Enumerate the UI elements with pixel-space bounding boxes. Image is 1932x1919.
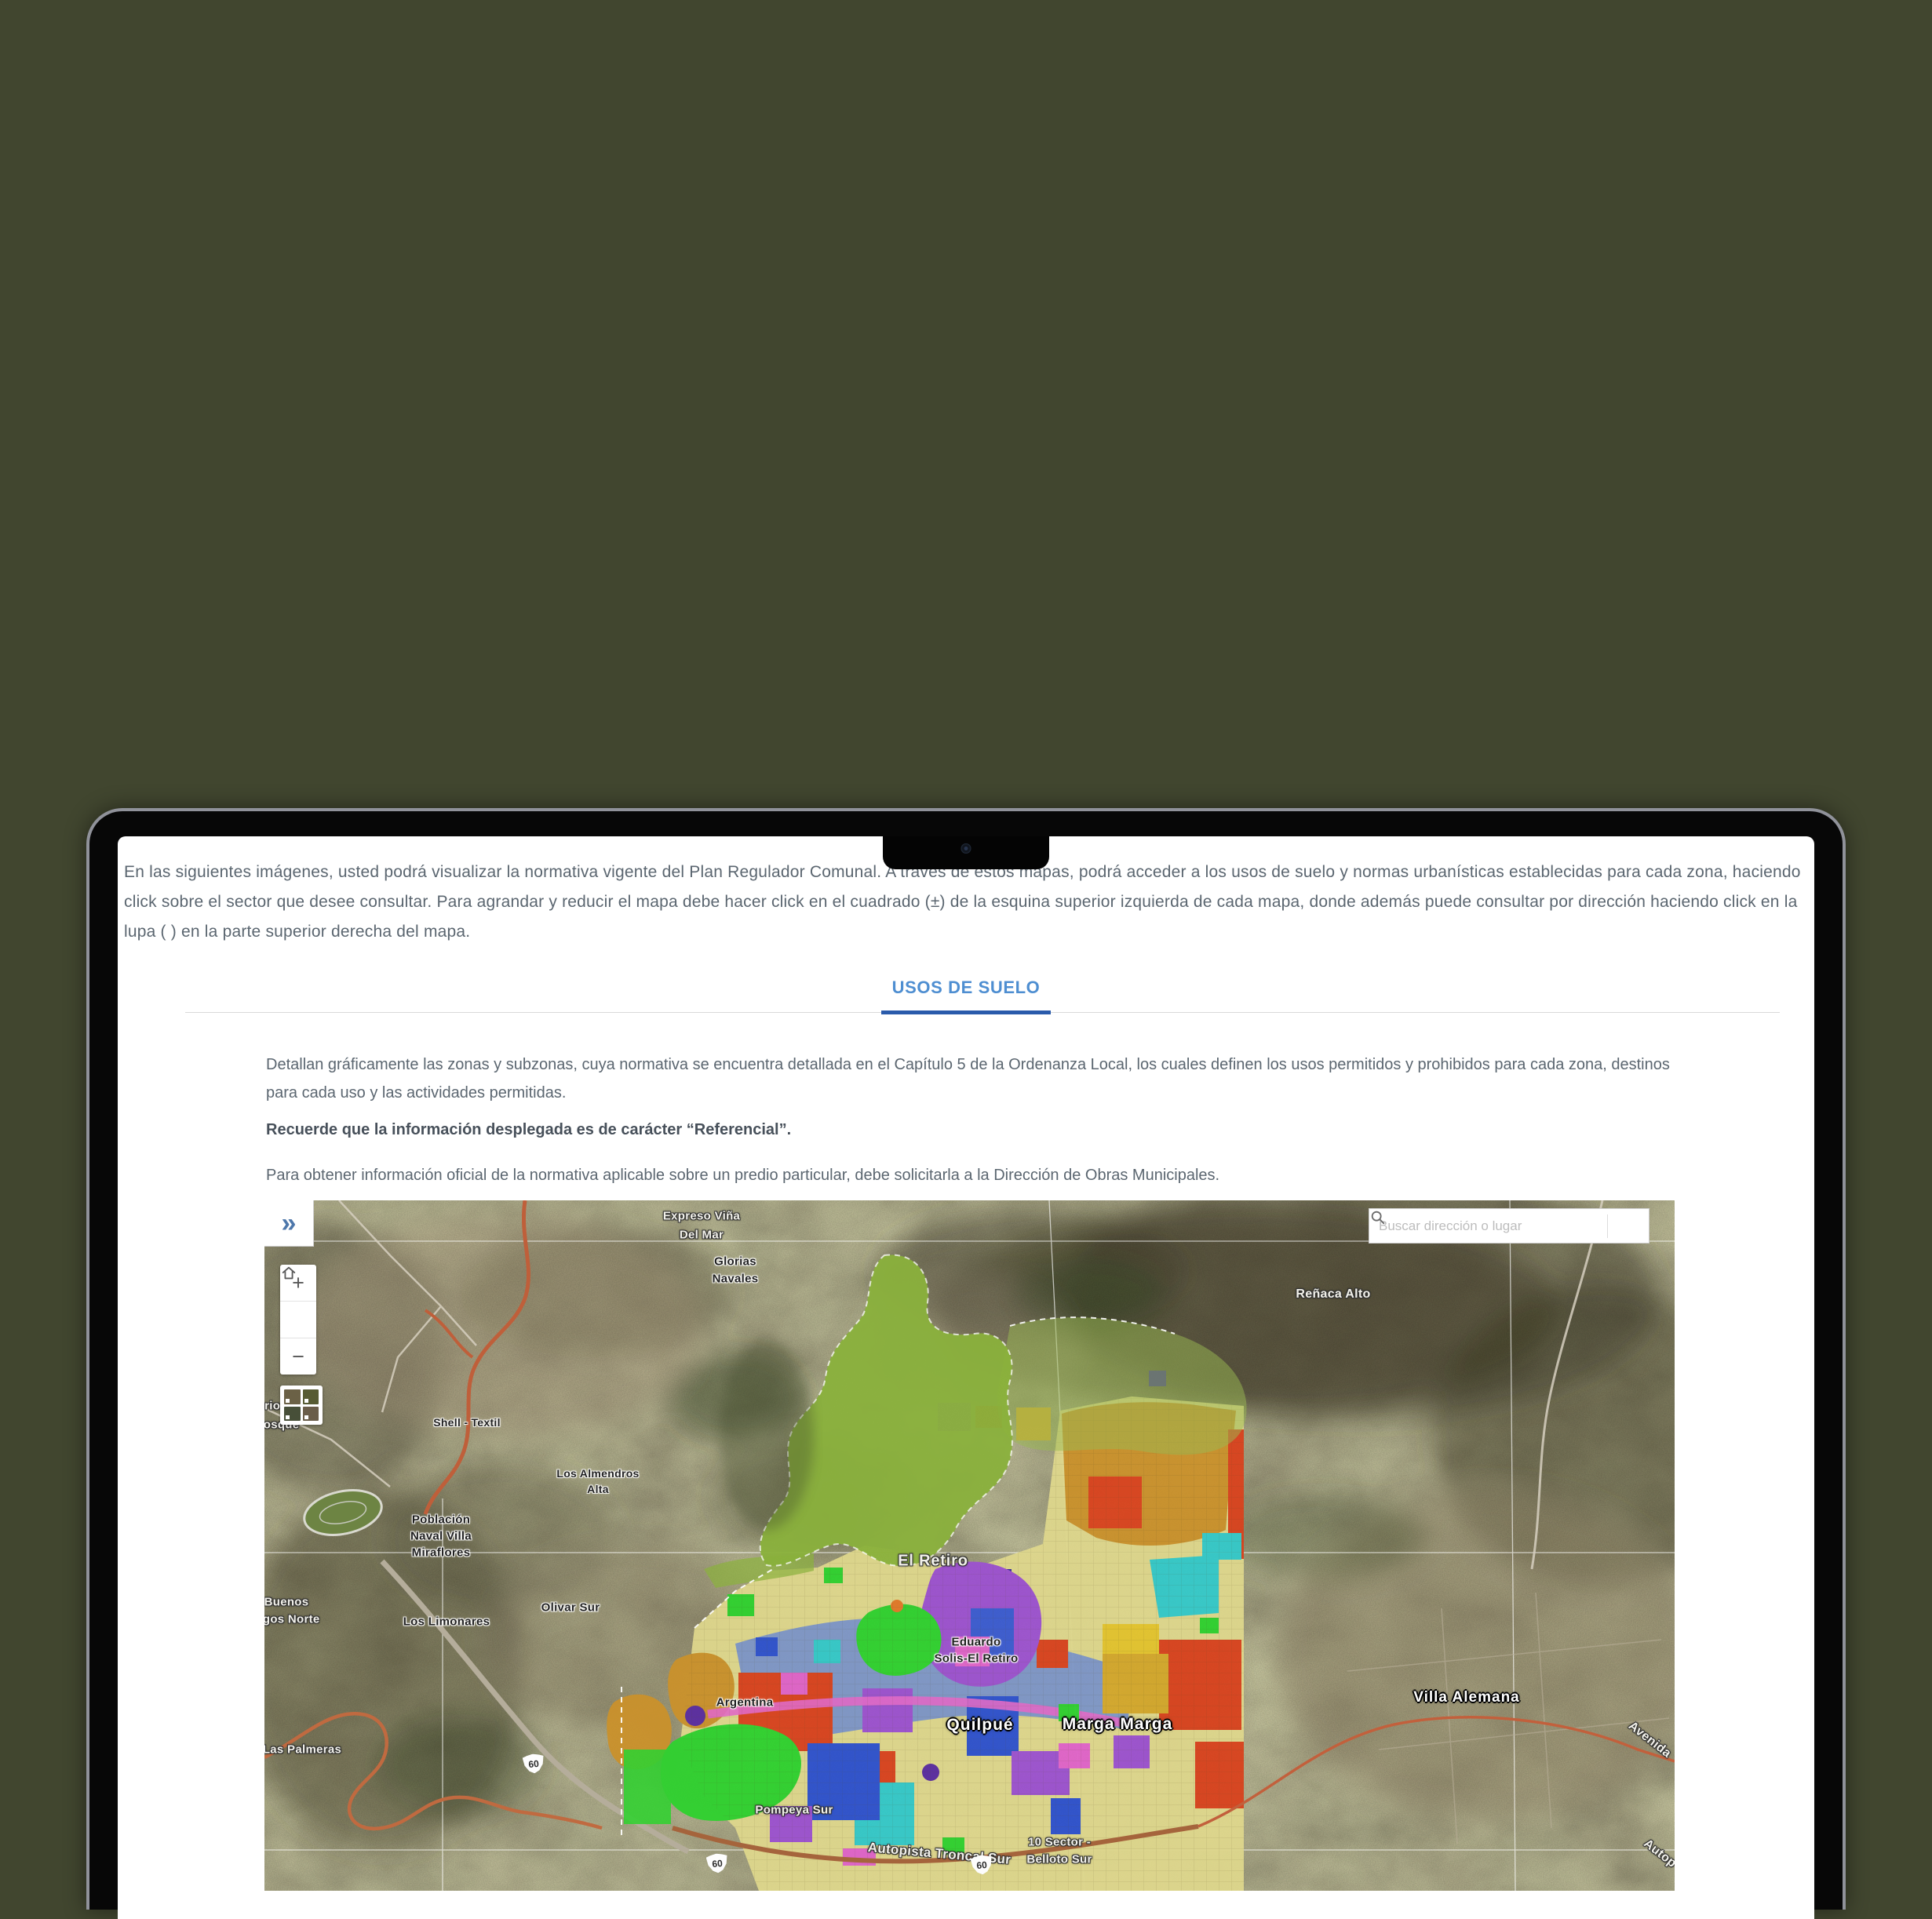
- basemap-thumbnail: [284, 1389, 301, 1404]
- map-label: Navales: [713, 1273, 759, 1286]
- map-label: 10 Sector -: [1028, 1836, 1091, 1849]
- map-label: Solis-El Retiro: [934, 1652, 1018, 1666]
- webcam-icon: [961, 843, 971, 854]
- map-label-city: Quilpué: [946, 1716, 1013, 1735]
- map-label: Los Almendros: [556, 1467, 639, 1480]
- map-label: Población: [412, 1513, 470, 1527]
- map-label: Las Palmeras: [264, 1743, 341, 1757]
- tab-usos-de-suelo[interactable]: USOS DE SUELO: [892, 978, 1041, 998]
- map-label: Alta: [587, 1483, 609, 1495]
- map-label-city: Marga Marga: [1063, 1715, 1173, 1734]
- map-label-city: Villa Alemana: [1413, 1689, 1520, 1706]
- map-label: Buenos: [264, 1596, 308, 1609]
- section-paragraph-1: Detallan gráficamente las zonas y subzon…: [266, 1051, 1679, 1107]
- zoning-map-canvas[interactable]: [264, 1200, 1675, 1891]
- map-label: Shell - Textil: [433, 1416, 501, 1429]
- map-label: Eduardo: [952, 1636, 1001, 1649]
- zoom-controls: + −: [280, 1265, 316, 1375]
- basemap-thumbnail: [284, 1407, 301, 1422]
- basemap-toggle[interactable]: [280, 1386, 323, 1425]
- map-label: Del Mar: [680, 1229, 724, 1242]
- map-label: igos Norte: [264, 1613, 320, 1626]
- map-usos-de-suelo[interactable]: » + −: [264, 1200, 1675, 1891]
- basemap-thumbnail: [303, 1407, 319, 1422]
- tab-active-underline: [881, 1010, 1051, 1014]
- map-label: Miraflores: [412, 1546, 471, 1560]
- section-paragraph-3: Para obtener información oficial de la n…: [266, 1161, 1679, 1189]
- map-label: Expreso Viña: [663, 1210, 740, 1223]
- intro-paragraph: En las siguientes imágenes, usted podrá …: [124, 858, 1811, 947]
- zoom-out-button[interactable]: −: [280, 1338, 316, 1375]
- map-label: Belloto Sur: [1026, 1853, 1092, 1866]
- laptop-notch: [883, 836, 1049, 869]
- laptop-screen: En las siguientes imágenes, usted podrá …: [118, 836, 1814, 1919]
- map-label: Glorias: [714, 1255, 756, 1269]
- map-label: El Retiro: [898, 1553, 968, 1571]
- section-paragraph-referencial: Recuerde que la información desplegada e…: [266, 1116, 1679, 1144]
- map-label: Pompeya Sur: [755, 1804, 833, 1817]
- laptop-mockup: En las siguientes imágenes, usted podrá …: [86, 808, 1846, 1910]
- map-label: Naval Villa: [410, 1530, 472, 1543]
- map-label: Reñaca Alto: [1296, 1287, 1370, 1302]
- search-button[interactable]: [1608, 1209, 1649, 1243]
- map-label: Argentina: [716, 1696, 774, 1710]
- map-search-box: [1369, 1208, 1649, 1244]
- map-label: Olivar Sur: [541, 1601, 600, 1615]
- map-label: Los Limonares: [403, 1615, 490, 1629]
- search-input[interactable]: [1369, 1218, 1607, 1234]
- desktop-background: En las siguientes imágenes, usted podrá …: [0, 0, 1932, 1866]
- home-extent-button[interactable]: [280, 1301, 316, 1338]
- basemap-thumbnail: [303, 1389, 319, 1404]
- expand-map-button[interactable]: »: [264, 1200, 314, 1247]
